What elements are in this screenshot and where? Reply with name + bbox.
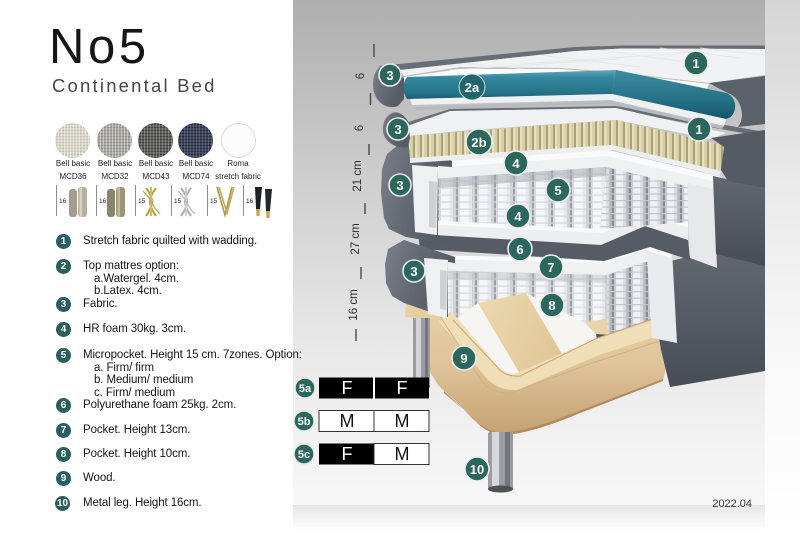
svg-text:1: 1 [692,56,699,71]
svg-text:F: F [397,378,408,398]
svg-text:3: 3 [396,178,403,193]
svg-text:6: 6 [355,73,367,79]
svg-text:7: 7 [547,260,554,275]
svg-text:2a: 2a [465,80,480,95]
svg-text:F: F [342,378,353,398]
svg-text:3: 3 [394,122,401,137]
svg-text:4: 4 [514,209,522,224]
svg-text:5c: 5c [298,449,310,461]
svg-text:8: 8 [548,298,555,313]
svg-text:2b: 2b [471,135,486,150]
svg-text:21 cm: 21 cm [352,160,364,191]
svg-text:M: M [395,411,410,431]
svg-text:6: 6 [354,125,366,131]
svg-text:5a: 5a [299,383,312,395]
svg-text:F: F [342,444,353,464]
svg-text:4: 4 [512,156,520,171]
svg-text:M: M [395,444,410,464]
svg-text:15: 15 [210,198,218,205]
svg-text:5: 5 [554,183,561,198]
svg-text:27 cm: 27 cm [350,223,362,254]
svg-text:16: 16 [99,198,107,205]
svg-text:15: 15 [174,198,182,205]
svg-text:6: 6 [516,242,523,257]
svg-text:3: 3 [386,68,393,83]
svg-text:16: 16 [246,198,254,205]
svg-text:15: 15 [138,198,146,205]
svg-text:3: 3 [410,264,417,279]
svg-text:9: 9 [460,351,467,366]
svg-text:16 cm: 16 cm [348,289,360,320]
svg-text:2022.04: 2022.04 [712,498,752,510]
svg-text:M: M [340,411,355,431]
svg-text:1: 1 [695,122,702,137]
svg-text:16: 16 [59,198,67,205]
svg-text:5b: 5b [298,416,311,428]
svg-text:10: 10 [470,462,484,477]
